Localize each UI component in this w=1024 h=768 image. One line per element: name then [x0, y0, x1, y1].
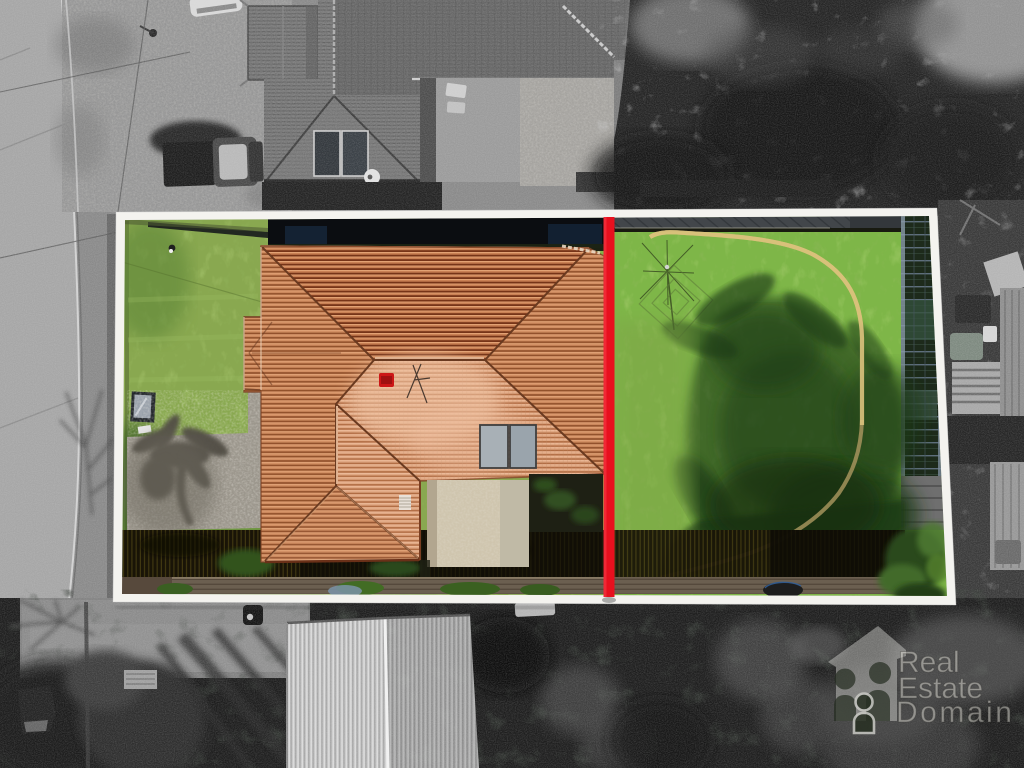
svg-text:Domain: Domain [896, 696, 1014, 729]
